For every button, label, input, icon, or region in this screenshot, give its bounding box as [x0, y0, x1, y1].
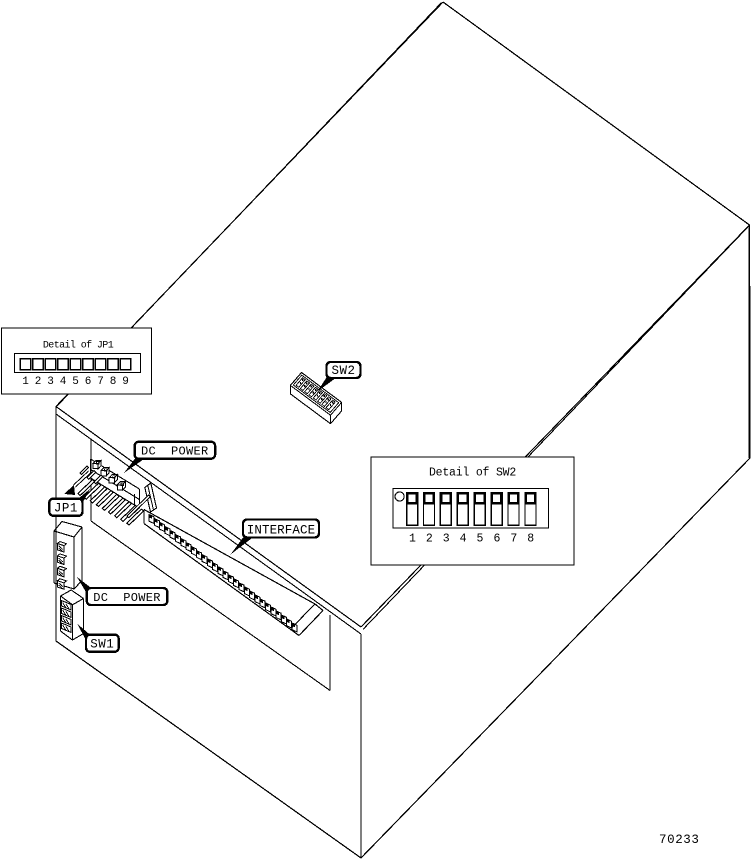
svg-text:3: 3: [47, 376, 54, 388]
svg-text:9: 9: [122, 376, 129, 388]
svg-text:8: 8: [110, 376, 117, 388]
svg-text:Detail of SW2: Detail of SW2: [429, 467, 516, 480]
svg-text:SW2: SW2: [331, 364, 355, 378]
svg-text:1: 1: [409, 533, 416, 546]
svg-text:INTERFACE: INTERFACE: [247, 523, 315, 537]
svg-text:2: 2: [35, 376, 42, 388]
svg-text:6: 6: [85, 376, 92, 388]
svg-text:4: 4: [460, 533, 467, 546]
svg-text:4: 4: [60, 376, 67, 388]
svg-text:2: 2: [426, 533, 433, 546]
svg-text:7: 7: [97, 376, 104, 388]
svg-text:8: 8: [527, 533, 534, 546]
svg-text:SW1: SW1: [90, 638, 114, 652]
svg-text:5: 5: [72, 376, 79, 388]
svg-text:5: 5: [477, 533, 484, 546]
svg-text:7: 7: [510, 533, 517, 546]
svg-text:DC POWER: DC POWER: [141, 445, 209, 459]
svg-text:JP1: JP1: [54, 502, 78, 516]
svg-text:3: 3: [443, 533, 450, 546]
svg-text:Detail of JP1: Detail of JP1: [43, 340, 114, 352]
svg-text:1: 1: [22, 376, 29, 388]
svg-text:DC POWER: DC POWER: [93, 591, 161, 605]
svg-text:70233: 70233: [659, 833, 700, 847]
svg-text:6: 6: [493, 533, 500, 546]
